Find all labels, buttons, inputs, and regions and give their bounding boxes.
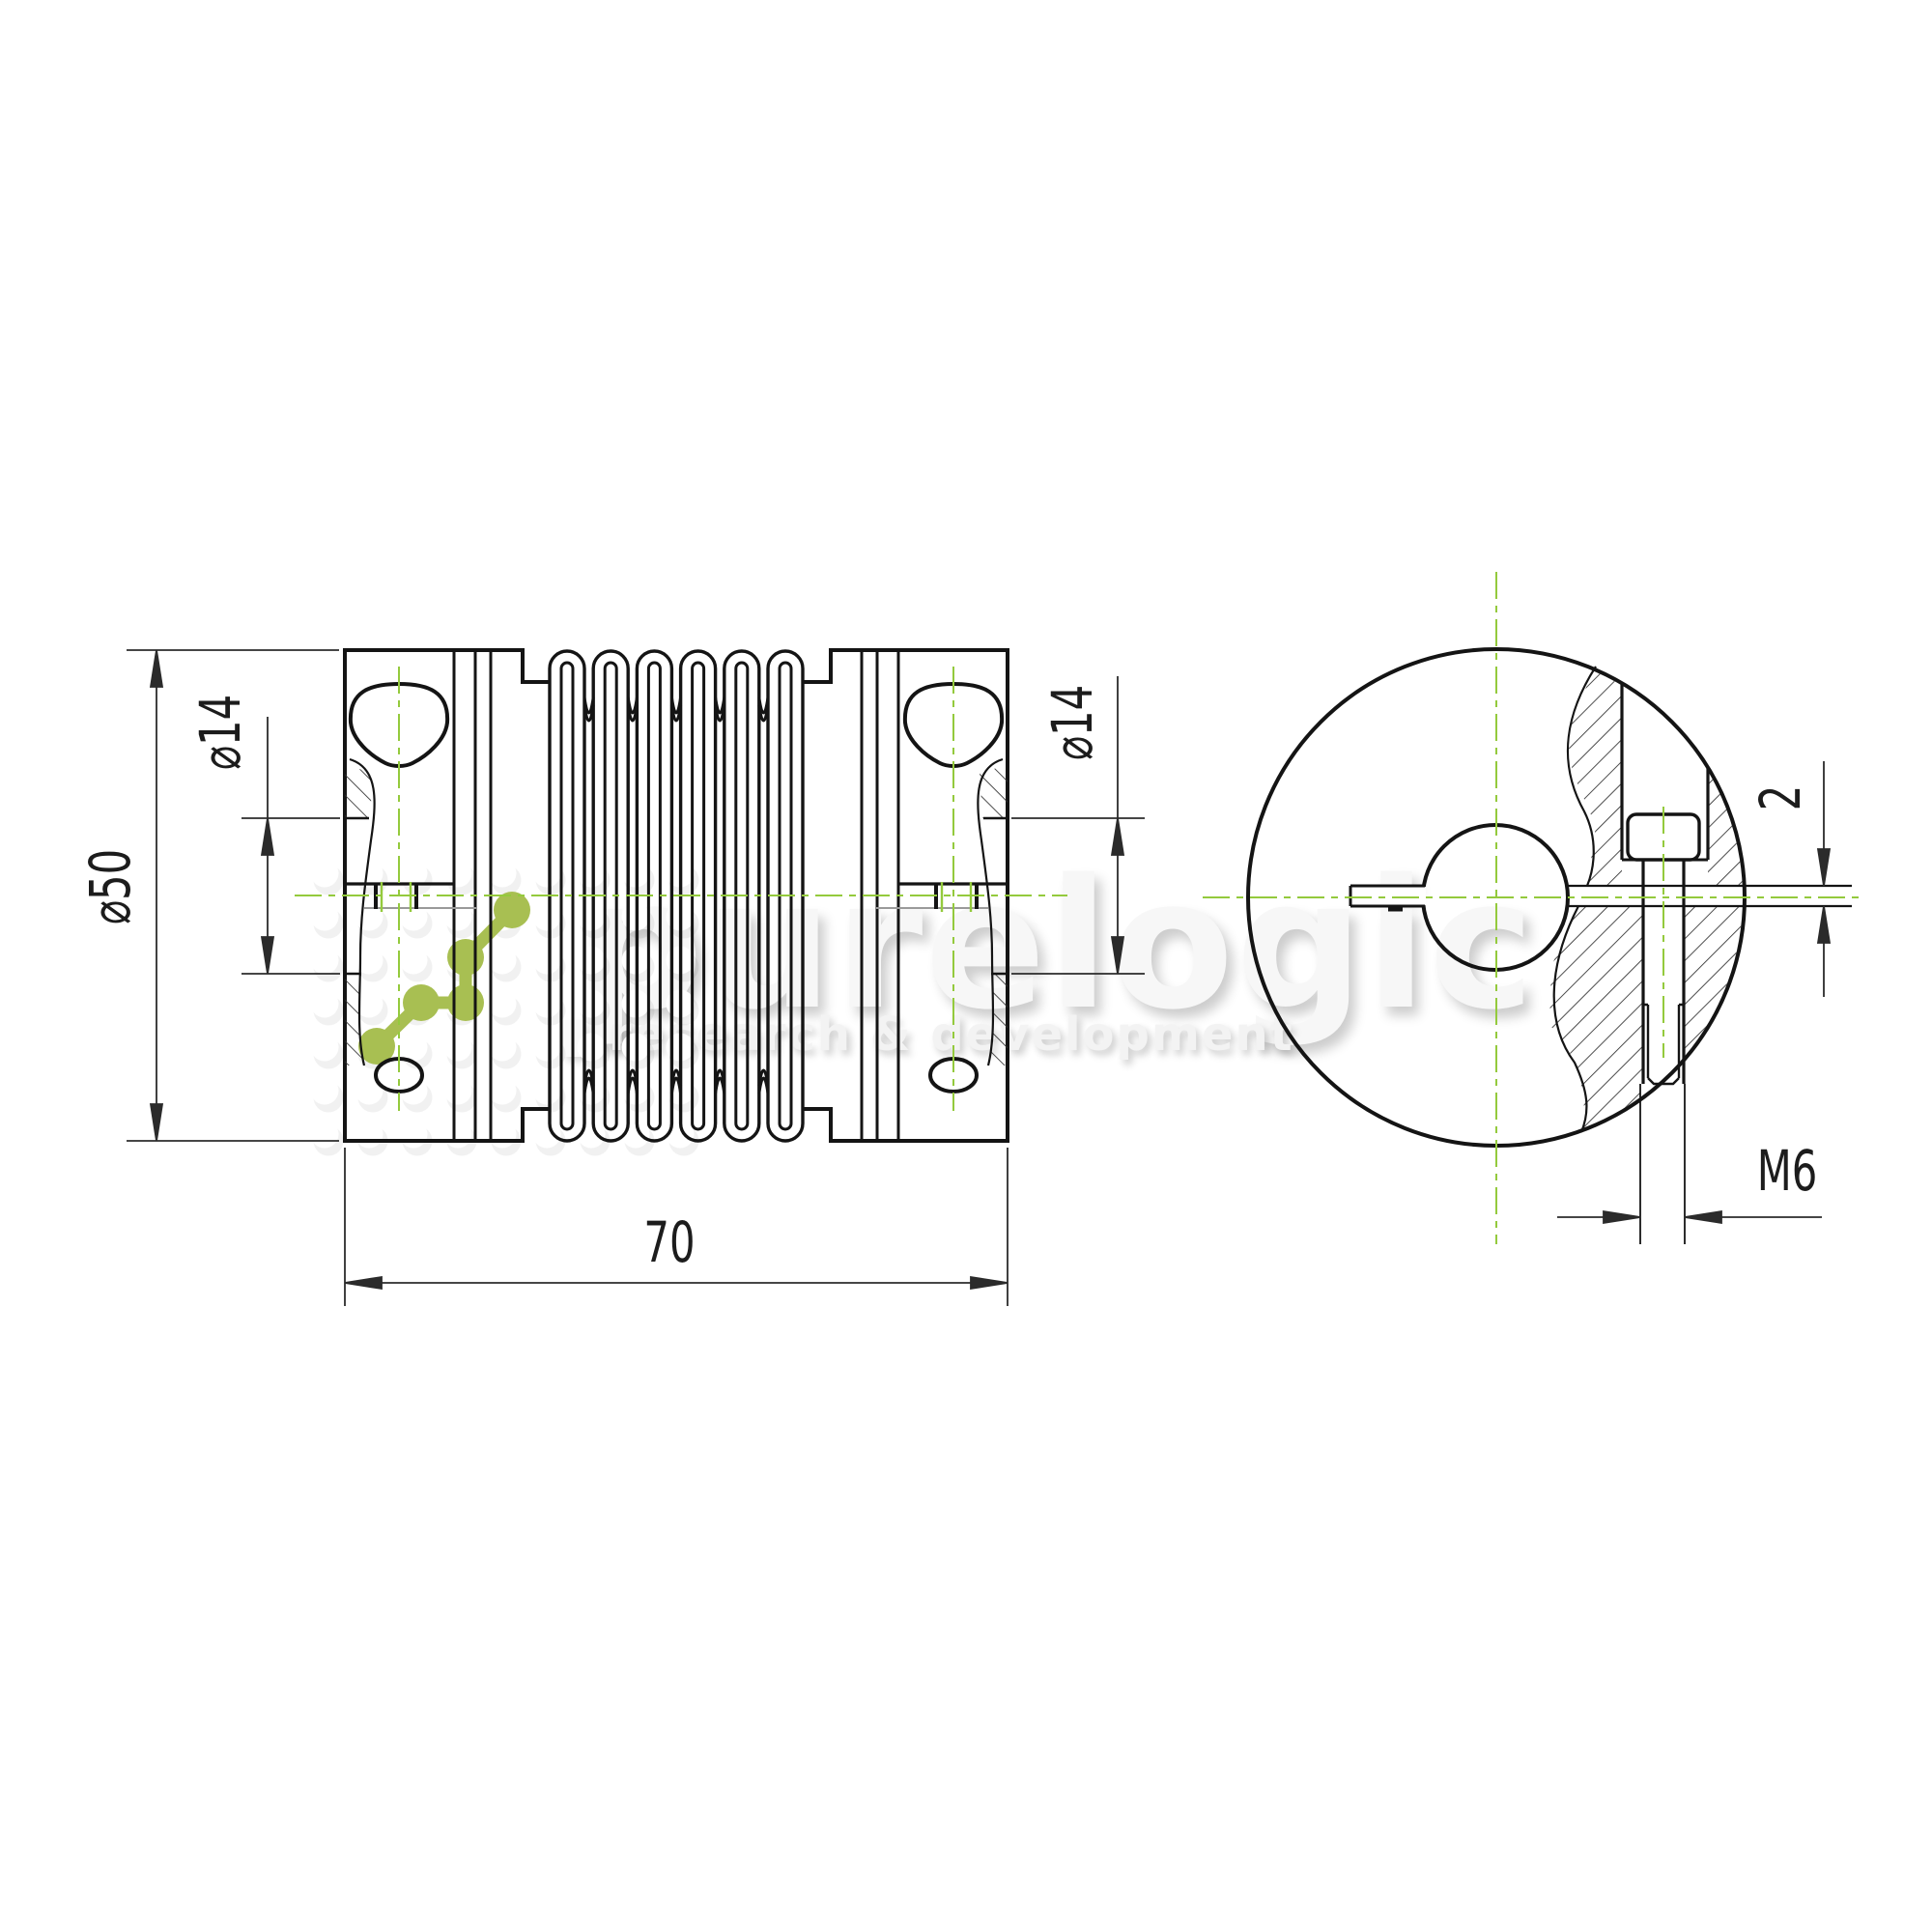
tapped-hole xyxy=(1640,1084,1685,1140)
logo-chain-node xyxy=(494,892,530,928)
logo-dot xyxy=(400,1034,428,1062)
logo-dot xyxy=(533,947,561,975)
logo-chain-node xyxy=(403,984,440,1021)
bore-left-label: ⌀14 xyxy=(187,695,253,770)
bore-right-label: ⌀14 xyxy=(1039,685,1105,760)
dim-clamp-screw xyxy=(1557,1211,1822,1223)
logo-dot xyxy=(578,903,606,931)
logo-dot xyxy=(400,1121,428,1149)
logo-dot xyxy=(533,1034,561,1062)
logo-dot xyxy=(489,860,517,888)
logo-dot xyxy=(311,990,339,1018)
logo-dot xyxy=(311,903,339,931)
logo-dot xyxy=(489,1034,517,1062)
logo-dot xyxy=(444,903,472,931)
logo-dot xyxy=(444,1077,472,1105)
logo-dot xyxy=(533,990,561,1018)
logo-dot xyxy=(355,1121,384,1149)
hatch-lower-right xyxy=(1684,906,1748,1135)
logo-dot xyxy=(489,1077,517,1105)
logo-dot xyxy=(489,990,517,1018)
logo-dot xyxy=(311,947,339,975)
logo-dot xyxy=(533,903,561,931)
logo-dot xyxy=(533,1121,561,1149)
overall-length-label: 70 xyxy=(643,1209,695,1275)
logo-dot xyxy=(578,1034,606,1062)
logo-dot xyxy=(311,860,339,888)
logo-dot xyxy=(578,860,606,888)
slit-width-label: 2 xyxy=(1747,785,1813,811)
clamp-screw-label: M6 xyxy=(1757,1138,1818,1204)
logo-dots-and-chain xyxy=(311,860,699,1156)
logo-dot xyxy=(578,990,606,1018)
technical-drawing xyxy=(0,0,1932,1932)
logo-dot xyxy=(533,860,561,888)
logo-dot xyxy=(444,1034,472,1062)
logo-dot xyxy=(533,1077,561,1105)
logo-dot xyxy=(400,903,428,931)
drawing-canvas: purelogic research & development xyxy=(0,0,1932,1932)
logo-dot xyxy=(444,1121,472,1149)
logo-dot xyxy=(355,903,384,931)
logo-dot xyxy=(489,1121,517,1149)
logo-dot xyxy=(311,1034,339,1062)
logo-dot xyxy=(311,1121,339,1149)
end-view-section-fill xyxy=(1549,668,1750,1140)
logo-dot xyxy=(578,947,606,975)
logo-dot xyxy=(489,947,517,975)
outer-diameter-label: ⌀50 xyxy=(77,849,143,924)
dim-slit-width xyxy=(1818,761,1830,997)
logo-dot xyxy=(400,947,428,975)
logo-dot xyxy=(311,1077,339,1105)
